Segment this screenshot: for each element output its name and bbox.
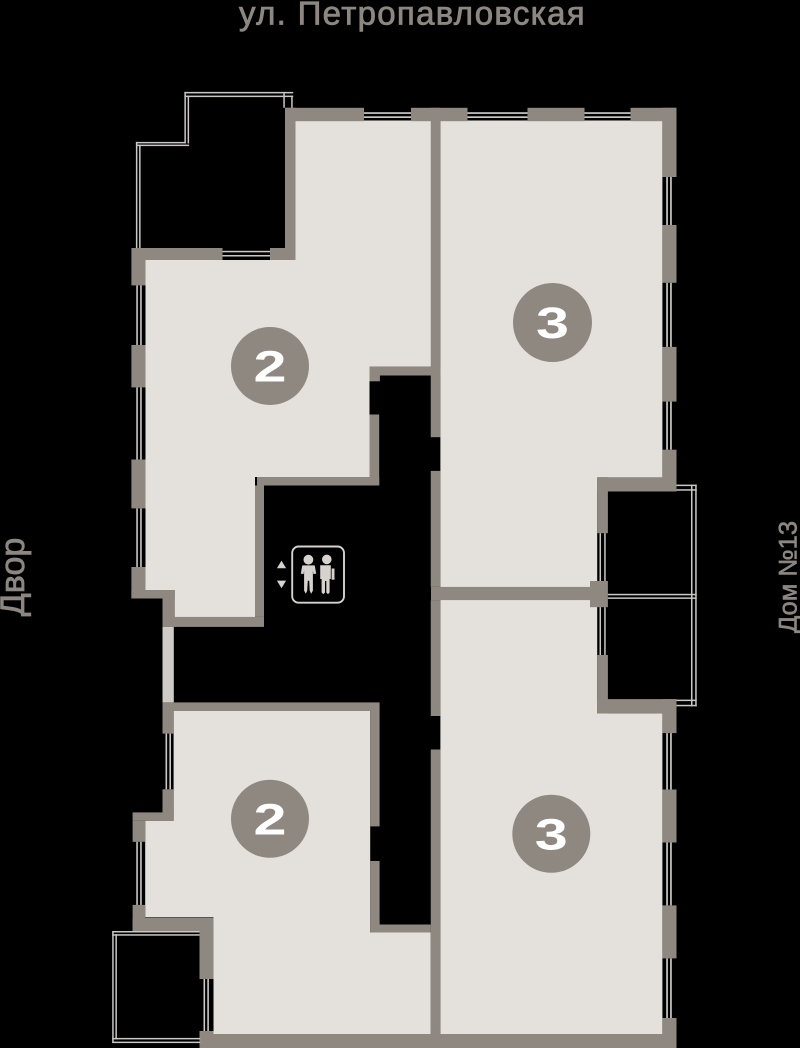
svg-text:ул. Петропавловская: ул. Петропавловская [239,0,586,32]
svg-text:Двор: Двор [0,538,32,617]
svg-text:Дом №13: Дом №13 [775,521,800,633]
svg-text:3: 3 [535,810,568,859]
svg-text:3: 3 [536,299,569,348]
svg-text:2: 2 [254,343,287,392]
svg-text:2: 2 [254,795,287,844]
